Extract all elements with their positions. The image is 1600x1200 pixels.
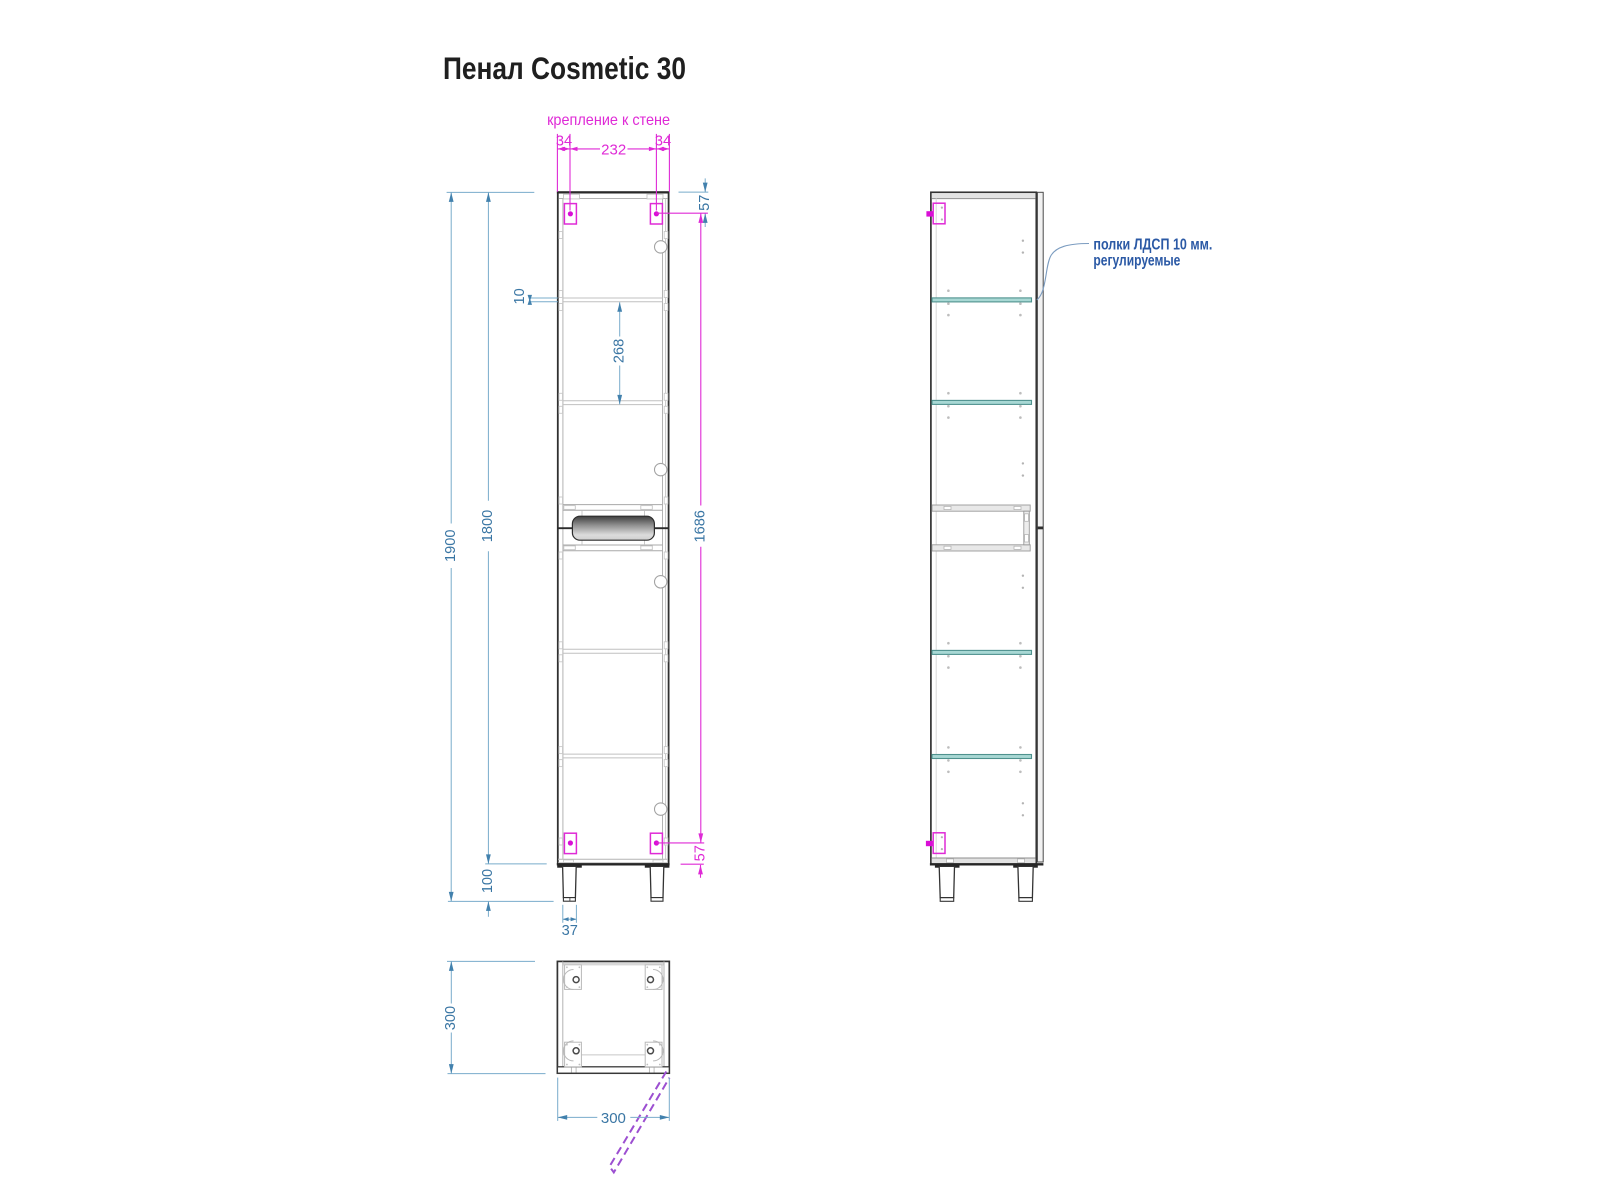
- svg-text:1900: 1900: [443, 530, 459, 562]
- svg-text:34: 34: [556, 134, 572, 150]
- svg-text:37: 37: [562, 923, 578, 939]
- svg-text:34: 34: [655, 134, 671, 150]
- svg-text:300: 300: [443, 1006, 459, 1030]
- svg-text:1800: 1800: [480, 510, 496, 542]
- svg-text:10: 10: [512, 288, 528, 304]
- svg-text:232: 232: [601, 142, 626, 159]
- svg-text:Пенал Cosmetic 30: Пенал Cosmetic 30: [443, 50, 686, 86]
- svg-text:полки ЛДСП 10 мм.: полки ЛДСП 10 мм.: [1093, 236, 1212, 253]
- svg-text:100: 100: [480, 869, 496, 893]
- svg-text:крепление к стене: крепление к стене: [547, 112, 670, 129]
- svg-text:регулируемые: регулируемые: [1093, 253, 1180, 270]
- svg-text:268: 268: [611, 339, 627, 363]
- svg-text:300: 300: [601, 1110, 626, 1127]
- svg-text:57: 57: [692, 845, 708, 861]
- svg-text:1686: 1686: [692, 510, 708, 542]
- svg-text:57: 57: [697, 195, 713, 211]
